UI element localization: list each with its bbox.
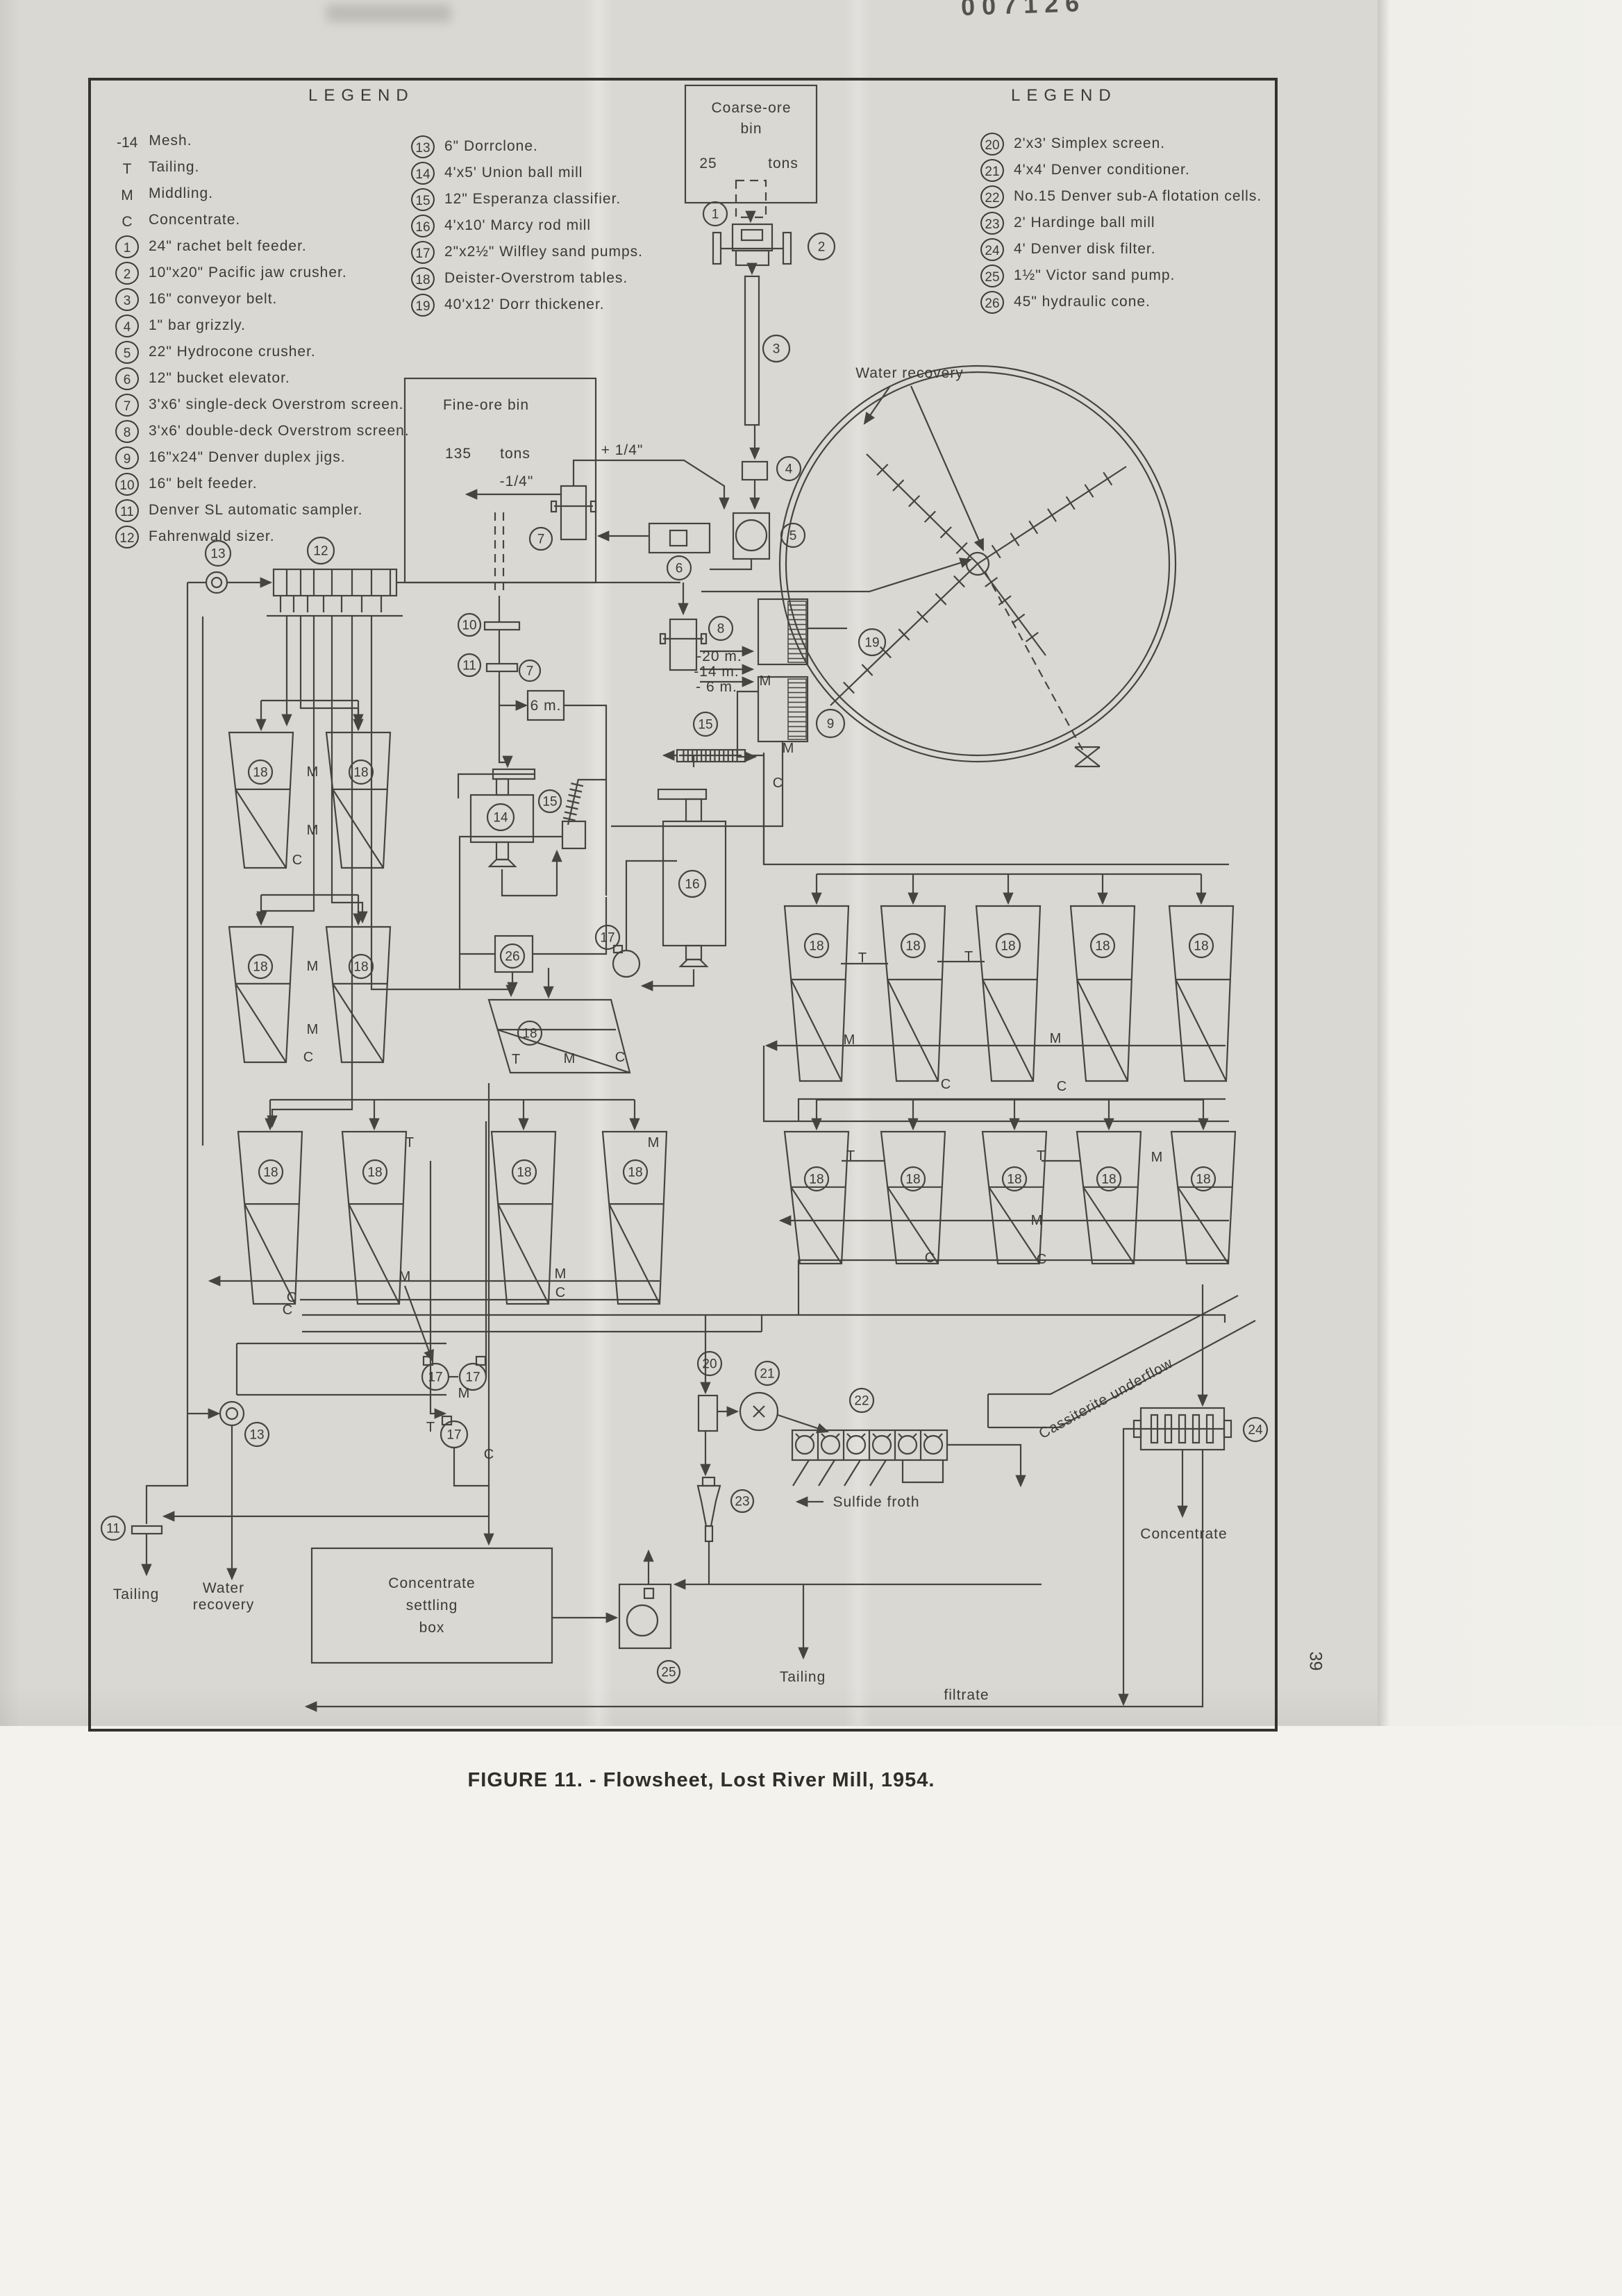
marker-number: 13 bbox=[249, 1428, 264, 1443]
svg-text:6 m.: 6 m. bbox=[530, 698, 562, 714]
six-mesh-box: 6 m. bbox=[499, 691, 606, 896]
flow-letter: C bbox=[484, 1447, 494, 1462]
bottom-collection-line bbox=[302, 1315, 1225, 1323]
wilfley-pump-pair bbox=[405, 1121, 486, 1377]
tailing-left-label: Tailing bbox=[113, 1586, 160, 1602]
marker-number: 26 bbox=[505, 950, 519, 964]
flow-letter: T bbox=[964, 949, 973, 964]
svg-text:Fine-ore bin: Fine-ore bin bbox=[443, 397, 529, 413]
marker-number: 12 bbox=[313, 544, 328, 559]
ticked-rake-line bbox=[563, 779, 583, 825]
denver-conditioner-symbol bbox=[740, 1393, 828, 1432]
sulfide-froth-label: Sulfide froth bbox=[833, 1494, 919, 1510]
table-outline bbox=[1169, 906, 1233, 1081]
marker-number: 18 bbox=[809, 1173, 823, 1187]
flow-letter: C bbox=[1037, 1252, 1046, 1267]
sizer-drop-2 bbox=[301, 616, 358, 725]
row2-concentrate-line bbox=[799, 1260, 1229, 1315]
table-outline bbox=[1071, 906, 1135, 1081]
marker-number: 2 bbox=[818, 240, 826, 255]
svg-text:bin: bin bbox=[740, 121, 762, 137]
dorrclone-symbol-top bbox=[187, 572, 271, 593]
flow-letter: M bbox=[307, 959, 319, 974]
marker-number: 11 bbox=[462, 659, 476, 673]
belt-feeder-symbol bbox=[485, 596, 519, 664]
table-outline bbox=[326, 732, 390, 868]
svg-text:tons: tons bbox=[500, 446, 530, 462]
marker-number: 18 bbox=[253, 766, 267, 780]
marker-number: 18 bbox=[353, 766, 368, 780]
flow-letter: C bbox=[773, 776, 783, 791]
flow-letter: M bbox=[648, 1135, 660, 1150]
marker-number: 18 bbox=[367, 1166, 382, 1180]
flow-letter: M bbox=[307, 1022, 319, 1037]
marcy-rod-mill-symbol bbox=[642, 755, 726, 986]
mesh20-label: -20 m. bbox=[696, 648, 742, 664]
marker-number: 17 bbox=[600, 931, 614, 946]
marker-number: 18 bbox=[263, 1166, 278, 1180]
union-ball-mill-symbol bbox=[471, 769, 557, 896]
flow-letter: T bbox=[846, 1148, 855, 1164]
table-outline bbox=[238, 1132, 302, 1304]
flow-letter: M bbox=[844, 1032, 855, 1048]
water-bottom-label-2: recovery bbox=[193, 1597, 255, 1613]
marker-number: 11 bbox=[106, 1522, 120, 1536]
row1-feed-manifold bbox=[764, 753, 1229, 864]
marker-number: 18 bbox=[353, 960, 368, 975]
table-outline bbox=[229, 732, 293, 868]
marker-number: 18 bbox=[1095, 939, 1110, 954]
marker-number: 18 bbox=[517, 1166, 531, 1180]
dorrclone-symbol-bottom bbox=[187, 1402, 244, 1579]
flow-letter: T bbox=[405, 1135, 414, 1150]
flow-letter: C bbox=[615, 1050, 625, 1065]
sampler-symbol-bottom bbox=[132, 1526, 162, 1575]
coarse-ore-bin: Coarse-ore bin 25 tons bbox=[685, 85, 817, 203]
row1-concentrate-line bbox=[799, 1099, 1226, 1121]
ticked-rake-line bbox=[679, 750, 742, 761]
tailing-mid-label: Tailing bbox=[780, 1669, 826, 1685]
table-outline bbox=[785, 1132, 848, 1264]
svg-text:135: 135 bbox=[445, 446, 471, 462]
svg-text:tons: tons bbox=[768, 156, 799, 171]
table-outline bbox=[229, 927, 293, 1062]
marker-number: 4 bbox=[785, 462, 793, 477]
table-outline bbox=[342, 1132, 406, 1304]
row2-feed-manifold bbox=[764, 1046, 1229, 1121]
wilfley-pump-symbol-mill bbox=[613, 861, 677, 977]
jaw-crusher-symbol bbox=[713, 224, 791, 274]
table-outline bbox=[881, 1132, 945, 1264]
table-outline bbox=[881, 906, 945, 1081]
marker-number: 22 bbox=[854, 1394, 869, 1409]
flow-letter: C bbox=[925, 1250, 935, 1266]
bucket-elevator-symbol bbox=[599, 523, 710, 553]
simplex-screen-symbol bbox=[699, 1315, 737, 1475]
svg-text:25: 25 bbox=[699, 156, 717, 171]
automatic-sampler-symbol bbox=[487, 664, 526, 705]
marker-number: 18 bbox=[1007, 1173, 1021, 1187]
flow-letter: C bbox=[303, 1050, 313, 1065]
mesh14-label: -14 m. bbox=[694, 664, 739, 680]
hardinge-ball-mill-symbol bbox=[698, 1477, 720, 1584]
marker-number: 18 bbox=[809, 939, 823, 954]
marker-number: 9 bbox=[827, 717, 835, 732]
marker-number: 18 bbox=[905, 1173, 920, 1187]
marker-number: 14 bbox=[493, 811, 508, 826]
marker-number: 15 bbox=[698, 718, 712, 732]
marker-number: 20 bbox=[702, 1357, 717, 1372]
duplex-jigs-symbol bbox=[611, 599, 847, 826]
junction-lines bbox=[237, 1343, 446, 1395]
bottom-collection-line-2 bbox=[302, 1315, 762, 1332]
flow-letter: T bbox=[1037, 1148, 1045, 1164]
hydraulic-cone-symbol bbox=[460, 897, 606, 993]
concentrate-right-label: Concentrate bbox=[1140, 1526, 1227, 1542]
flow-letter: T bbox=[858, 950, 867, 966]
table-outline bbox=[785, 906, 848, 1081]
flow-letter: T bbox=[512, 1052, 520, 1067]
table-outline bbox=[492, 1132, 555, 1304]
marker-number: 17 bbox=[465, 1371, 480, 1385]
minus-quarter-label: -1/4" bbox=[500, 474, 534, 489]
ticked-rake-line bbox=[867, 454, 978, 564]
left-trunk-line bbox=[147, 583, 187, 1524]
shaking-tables-group bbox=[229, 701, 1235, 1304]
marker-number: 24 bbox=[1248, 1423, 1263, 1438]
rachet-belt-feeder-symbol bbox=[736, 181, 766, 221]
marker-number: 7 bbox=[537, 533, 545, 547]
hydrocone-crusher-symbol bbox=[710, 513, 769, 569]
table-outline bbox=[1077, 1132, 1141, 1264]
flow-letter: M bbox=[307, 764, 319, 780]
marker-number: 18 bbox=[1101, 1173, 1116, 1187]
flow-letter: M bbox=[760, 673, 771, 689]
dorr-thickener-symbol bbox=[780, 366, 1176, 766]
table-outline bbox=[603, 1132, 667, 1304]
table-outline bbox=[326, 927, 390, 1062]
marker-number: 8 bbox=[717, 622, 725, 637]
marker-number: 18 bbox=[253, 960, 267, 975]
marker-number: 19 bbox=[864, 636, 879, 651]
svg-text:settling: settling bbox=[406, 1598, 458, 1614]
filtrate-label: filtrate bbox=[944, 1687, 989, 1703]
table-outline bbox=[1171, 1132, 1235, 1264]
marker-number: 1 bbox=[712, 208, 719, 222]
flow-letter: C bbox=[283, 1302, 292, 1318]
flow-letter: M bbox=[1151, 1150, 1163, 1165]
flowsheet-diagram: Coarse-ore bin 25 tons bbox=[0, 0, 1622, 2296]
ticked-rake-line bbox=[978, 564, 1046, 655]
table-outline-wide bbox=[489, 968, 630, 1073]
flow-letter: M bbox=[555, 1266, 567, 1282]
flotation-cells-symbol bbox=[792, 1430, 1021, 1502]
marker-number: 23 bbox=[735, 1495, 749, 1509]
victor-sand-pump-symbol bbox=[552, 1551, 1042, 1658]
marker-number: 13 bbox=[210, 547, 225, 562]
flow-letter: M bbox=[399, 1269, 411, 1284]
marker-number: 15 bbox=[542, 795, 557, 810]
flow-letter: C bbox=[941, 1077, 951, 1092]
rake-arms-group bbox=[563, 454, 1126, 825]
marker-number: 3 bbox=[773, 342, 780, 357]
sizer-drop-6 bbox=[371, 616, 511, 996]
marker-number: 17 bbox=[446, 1428, 461, 1443]
mesh6-label: - 6 m. bbox=[696, 679, 737, 695]
esperanza-classifier-horizontal bbox=[664, 750, 764, 864]
fahrenwald-sizer-symbol bbox=[267, 560, 971, 616]
marker-number: 7 bbox=[526, 664, 534, 679]
marker-number: 18 bbox=[905, 939, 920, 954]
flow-letter: M bbox=[783, 741, 794, 756]
ticked-rake-line bbox=[978, 467, 1126, 564]
svg-text:Coarse-ore: Coarse-ore bbox=[711, 100, 791, 116]
flow-letter: M bbox=[1031, 1213, 1043, 1228]
marker-number: 18 bbox=[522, 1027, 537, 1041]
marker-number: 18 bbox=[1194, 939, 1208, 954]
flow-letter: C bbox=[555, 1285, 565, 1300]
flow-letter: M bbox=[1050, 1031, 1062, 1046]
svg-text:box: box bbox=[419, 1620, 445, 1636]
page-number: 39 bbox=[1305, 1652, 1325, 1671]
marker-number: 6 bbox=[676, 562, 683, 576]
flow-letter: M bbox=[307, 823, 319, 838]
marker-number: 16 bbox=[685, 878, 699, 892]
conveyor-belt-symbol bbox=[745, 276, 759, 458]
flow-letter: M bbox=[564, 1051, 576, 1066]
water-recovery-top-label: Water recovery bbox=[855, 365, 964, 381]
bar-grizzly-symbol bbox=[742, 462, 767, 508]
flow-letter: C bbox=[1057, 1079, 1067, 1094]
concentrate-settling-box: Concentrate settling box bbox=[312, 1548, 552, 1663]
figure-caption: FIGURE 11. - Flowsheet, Lost River Mill,… bbox=[389, 1769, 1014, 1792]
marker-number: 5 bbox=[789, 529, 797, 544]
flow-letter: C bbox=[292, 853, 302, 868]
marker-number: 18 bbox=[1001, 939, 1015, 954]
marker-number: 10 bbox=[462, 619, 476, 633]
marker-number: 17 bbox=[428, 1371, 442, 1385]
circled-number-markers: 1234567789101112131415151617181818181818… bbox=[101, 202, 1267, 1683]
water-bottom-label-1: Water bbox=[203, 1580, 244, 1596]
plus-quarter-label: + 1/4" bbox=[601, 442, 644, 458]
ticked-rake-line bbox=[830, 564, 978, 705]
svg-text:Concentrate: Concentrate bbox=[388, 1575, 475, 1591]
flow-letter: T bbox=[426, 1420, 435, 1435]
marker-number: 18 bbox=[628, 1166, 642, 1180]
scanned-page: 007126 LEGEND LEGEND -14 Mesh. T Tailing… bbox=[0, 0, 1622, 2296]
table-outline bbox=[976, 906, 1040, 1081]
marker-number: 18 bbox=[1196, 1173, 1210, 1187]
marker-number: 25 bbox=[661, 1666, 676, 1680]
flow-letter: M bbox=[458, 1386, 470, 1401]
marker-number: 21 bbox=[760, 1367, 774, 1382]
